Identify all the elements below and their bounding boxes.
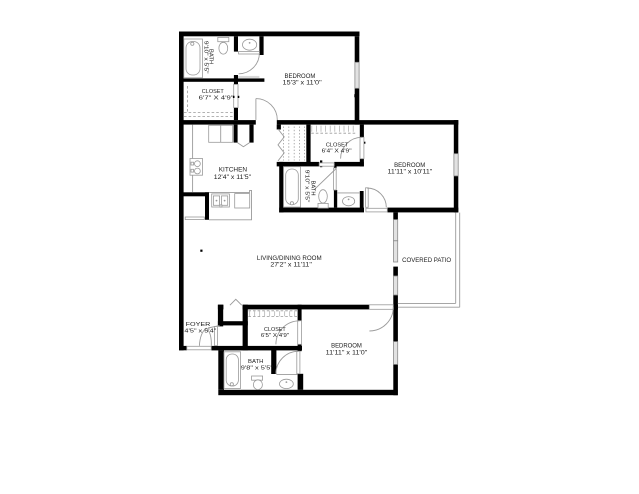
svg-text:BEDROOM: BEDROOM <box>331 343 362 350</box>
svg-text:15'3" x 11'0": 15'3" x 11'0" <box>283 80 322 87</box>
svg-text:6'5" X 4'9": 6'5" X 4'9" <box>261 333 289 339</box>
svg-text:6'7" X 4'9": 6'7" X 4'9" <box>199 96 234 102</box>
svg-text:COVERED PATIO: COVERED PATIO <box>402 257 451 264</box>
svg-text:9'8" x 5'5": 9'8" x 5'5" <box>241 366 273 372</box>
svg-text:FOYER: FOYER <box>186 322 211 328</box>
svg-text:6'4" X 4'9": 6'4" X 4'9" <box>322 148 352 154</box>
svg-text:CLOSET: CLOSET <box>202 89 224 95</box>
svg-text:11'11" x 11'0": 11'11" x 11'0" <box>326 350 368 357</box>
svg-text:27'2" x 11'11": 27'2" x 11'11" <box>270 262 312 269</box>
svg-text:4'5" x 5'4": 4'5" x 5'4" <box>184 329 216 335</box>
svg-text:BATH: BATH <box>248 359 263 365</box>
svg-text:12'4" x 11'5": 12'4" x 11'5" <box>214 174 251 181</box>
svg-text:9'10" x 5'5": 9'10" x 5'5" <box>203 41 209 74</box>
svg-text:11'11" x 10'11": 11'11" x 10'11" <box>388 168 433 175</box>
svg-text:9'10" x 5'5": 9'10" x 5'5" <box>303 170 309 203</box>
svg-text:KITCHEN: KITCHEN <box>219 167 247 174</box>
